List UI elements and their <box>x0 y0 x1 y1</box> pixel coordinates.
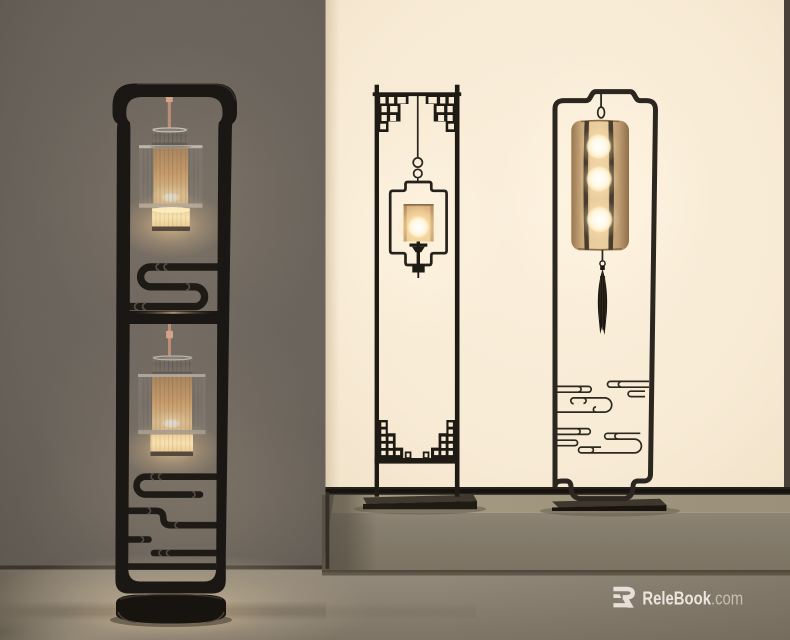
svg-text:ReleBook.com: ReleBook.com <box>642 588 743 609</box>
